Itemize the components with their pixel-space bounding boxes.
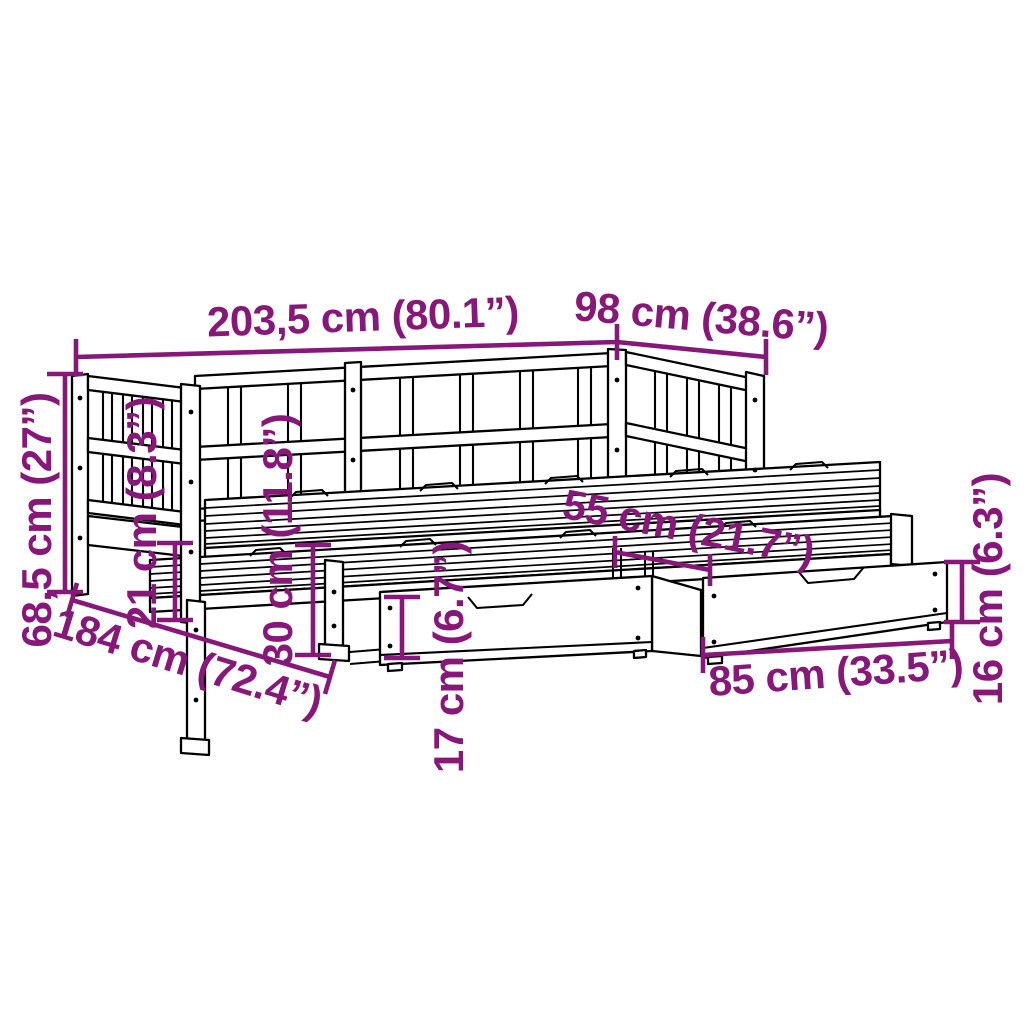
dimension-total-height-label: 68,5 cm (27”) (13, 393, 60, 648)
dimension-trundle-height-label: 30 cm (11.8”) (254, 414, 301, 667)
product-dimension-diagram: 203,5 cm (80.1”) 98 cm (38.6”) 68,5 cm (… (0, 0, 1024, 1024)
diagram-svg: 203,5 cm (80.1”) 98 cm (38.6”) 68,5 cm (… (0, 0, 1024, 1024)
dimension-total-length-label: 203,5 cm (80.1”) (206, 288, 519, 346)
dimension-clearance-label: 21 cm (8.3”) (118, 397, 165, 629)
dimension-drawer-front-height-label: 17 cm (6.7”) (425, 541, 472, 773)
dimension-drawer-height-label: 16 cm (6.3”) (964, 473, 1011, 705)
